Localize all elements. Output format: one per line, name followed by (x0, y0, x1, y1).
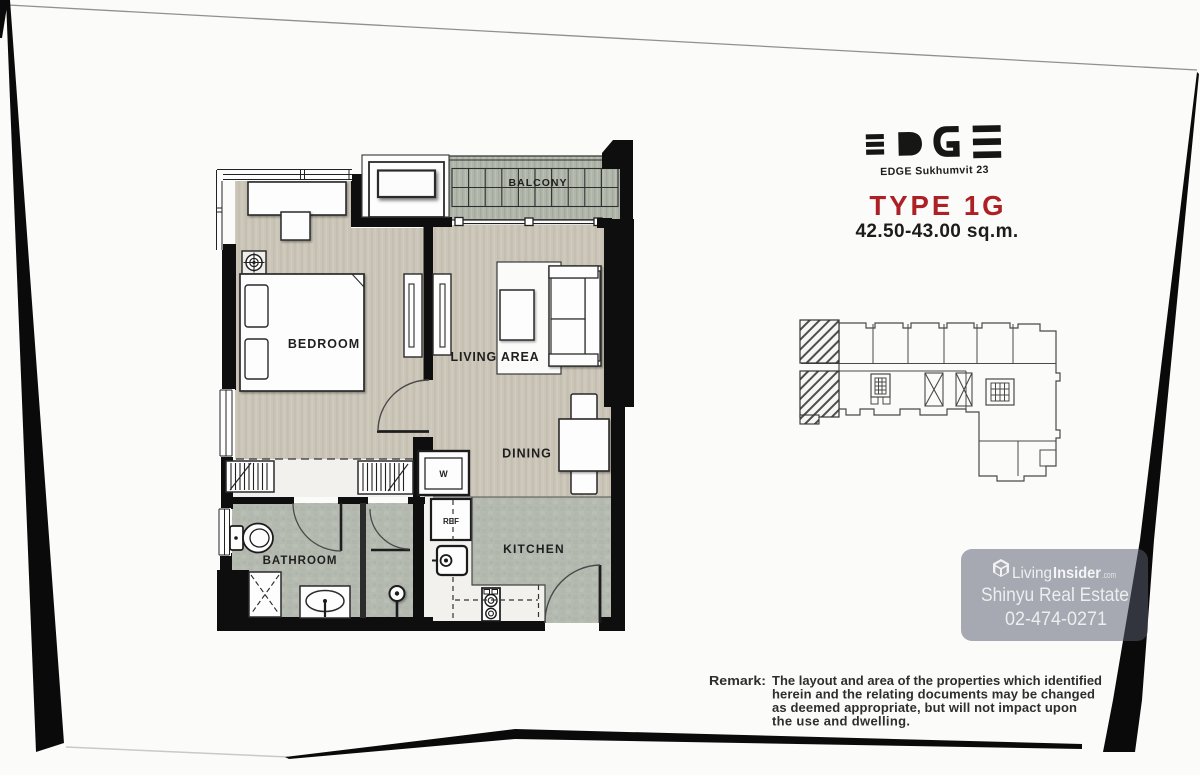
svg-text:KITCHEN: KITCHEN (503, 542, 565, 556)
svg-text:REF: REF (443, 517, 459, 526)
svg-text:.com: .com (1102, 570, 1116, 580)
svg-text:BATHROOM: BATHROOM (263, 555, 338, 567)
svg-text:Shinyu Real Estate: Shinyu Real Estate (981, 584, 1129, 606)
svg-text:TYPE 1G: TYPE 1G (869, 190, 1006, 221)
svg-text:LIVING AREA: LIVING AREA (451, 350, 540, 364)
svg-text:W: W (439, 469, 448, 479)
svg-text:DINING: DINING (502, 447, 552, 461)
svg-text:Insider: Insider (1053, 565, 1101, 582)
svg-text:Remark:: Remark: (709, 673, 766, 688)
svg-text:EDGE Sukhumvit 23: EDGE Sukhumvit 23 (880, 164, 989, 178)
svg-text:the use and dwelling.: the use and dwelling. (772, 714, 910, 729)
svg-text:Living: Living (1012, 565, 1052, 582)
svg-text:BEDROOM: BEDROOM (288, 337, 360, 351)
svg-text:42.50-43.00 sq.m.: 42.50-43.00 sq.m. (855, 221, 1018, 242)
svg-text:BALCONY: BALCONY (509, 177, 568, 189)
svg-text:02-474-0271: 02-474-0271 (1005, 608, 1107, 630)
